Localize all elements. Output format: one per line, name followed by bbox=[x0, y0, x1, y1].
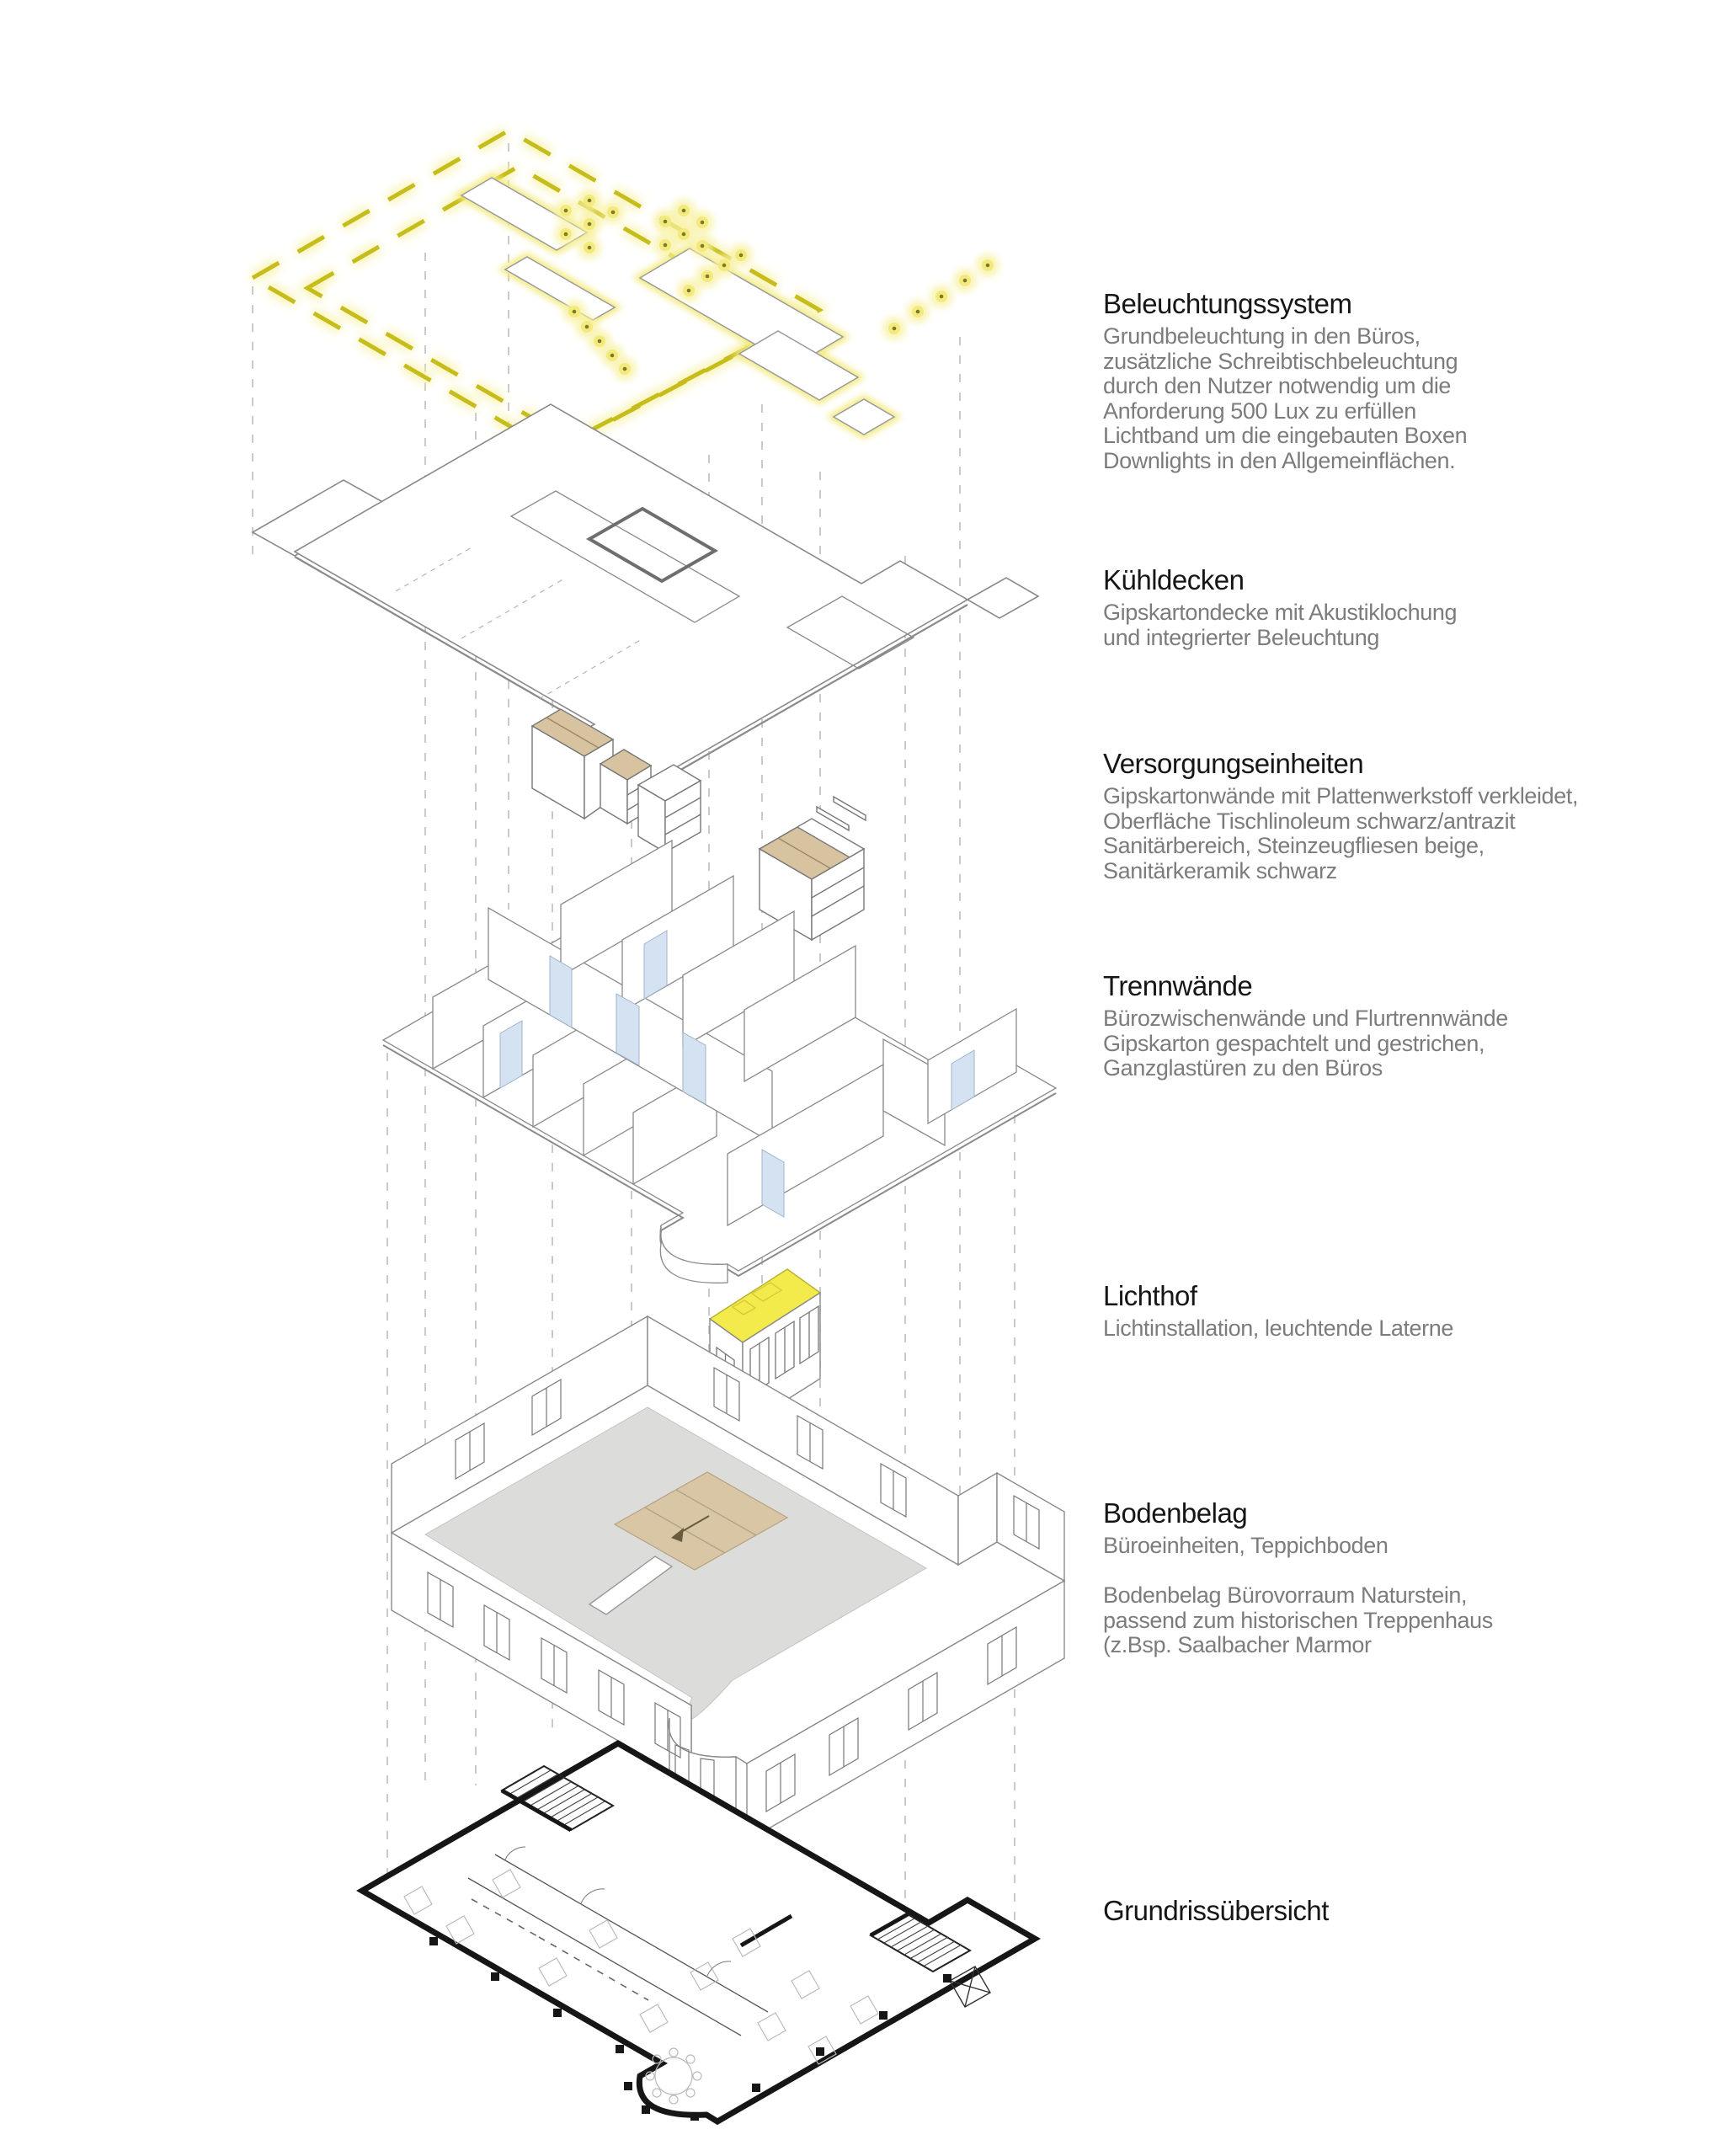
section-bodenbelag: Bodenbelag Büroeinheiten, Teppichboden B… bbox=[1103, 1497, 1608, 1658]
section-title: Versorgungseinheiten bbox=[1103, 748, 1608, 780]
supply-unit-4 bbox=[760, 797, 866, 940]
section-title: Grundrissübersicht bbox=[1103, 1895, 1608, 1927]
ceiling-layer bbox=[253, 404, 1038, 787]
section-lichthof: Lichthof Lichtinstallation, leuchtende L… bbox=[1103, 1280, 1608, 1342]
section-body: Gipskartonwände mit Plattenwerkstoff ver… bbox=[1103, 784, 1608, 883]
section-body: Bürozwischenwände und Flurtrennwände Gip… bbox=[1103, 1006, 1608, 1081]
ceiling-main-slab bbox=[295, 404, 967, 782]
section-title: Beleuchtungssystem bbox=[1103, 288, 1608, 320]
floorplan-layer bbox=[362, 1743, 1035, 2121]
section-body: Gipskartondecke mit Akustiklochung und i… bbox=[1103, 600, 1608, 650]
section-body: Grundbeleuchtung in den Büros, zusätzlic… bbox=[1103, 324, 1608, 473]
page: Beleuchtungssystem Grundbeleuchtung in d… bbox=[0, 0, 1727, 2156]
ceiling-right-tab bbox=[967, 578, 1038, 618]
lighting-layer bbox=[253, 131, 999, 451]
section-title: Kühldecken bbox=[1103, 564, 1608, 596]
section-beleuchtungssystem: Beleuchtungssystem Grundbeleuchtung in d… bbox=[1103, 288, 1608, 473]
section-kuehldecken: Kühldecken Gipskartondecke mit Akustiklo… bbox=[1103, 564, 1608, 650]
section-title: Lichthof bbox=[1103, 1280, 1608, 1312]
section-title: Trennwände bbox=[1103, 970, 1608, 1002]
section-grundrissuebersicht: Grundrissübersicht bbox=[1103, 1895, 1608, 1931]
section-title: Bodenbelag bbox=[1103, 1497, 1608, 1529]
section-body: Büroeinheiten, Teppichboden Bodenbelag B… bbox=[1103, 1534, 1608, 1658]
floor-layer bbox=[392, 1316, 1064, 1841]
section-versorgungseinheiten: Versorgungseinheiten Gipskartonwände mit… bbox=[1103, 748, 1608, 883]
plan-outline bbox=[362, 1743, 1035, 2121]
section-trennwaende: Trennwände Bürozwischenwände und Flurtre… bbox=[1103, 970, 1608, 1081]
section-body: Lichtinstallation, leuchtende Laterne bbox=[1103, 1316, 1608, 1342]
partition-walls-layer bbox=[383, 841, 1056, 1283]
